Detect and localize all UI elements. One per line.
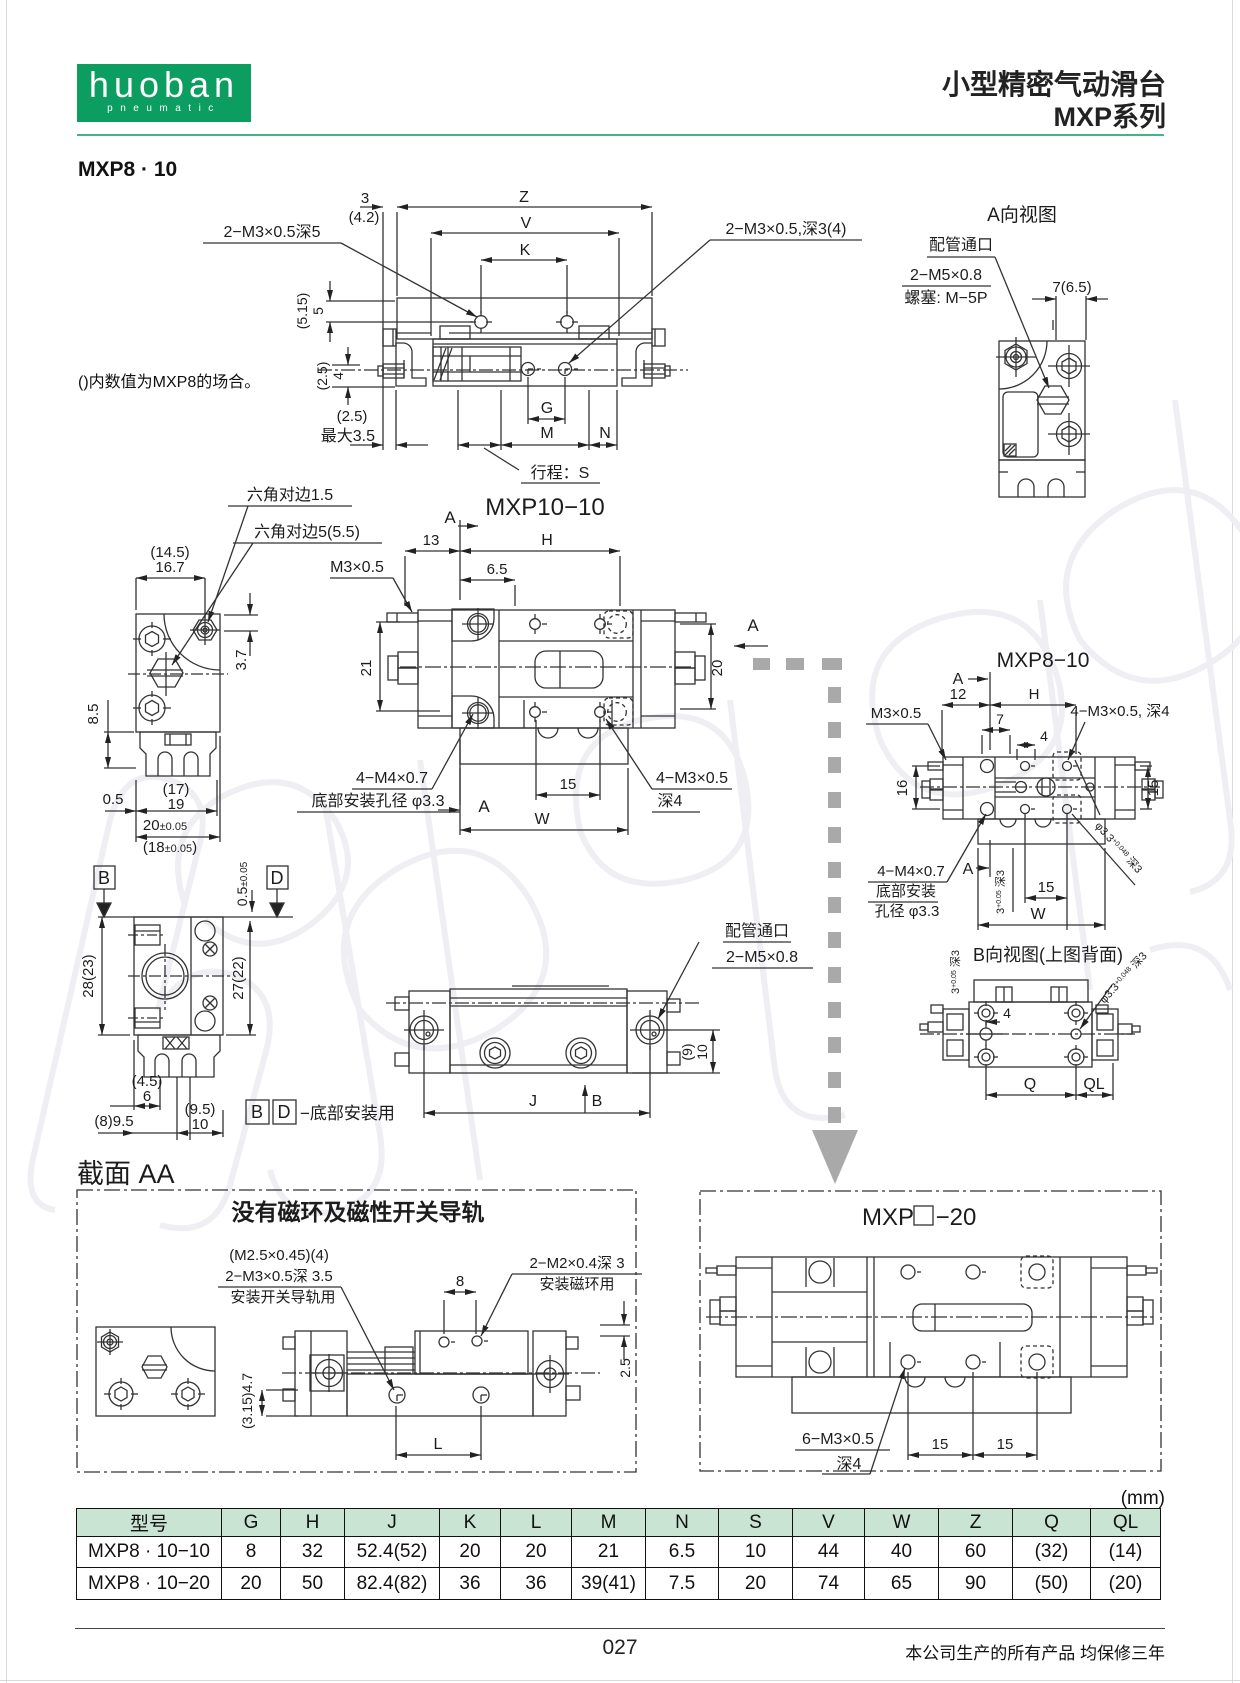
svg-text:27(22): 27(22)	[230, 956, 247, 999]
svg-text:(4.2): (4.2)	[349, 209, 380, 226]
svg-text:15: 15	[1145, 780, 1162, 797]
svg-text:6−M3×0.5: 6−M3×0.5	[802, 1431, 874, 1448]
svg-text:0.5: 0.5	[103, 791, 124, 808]
svg-text:4: 4	[1040, 728, 1048, 744]
svg-text:7(6.5): 7(6.5)	[1052, 279, 1091, 296]
svg-text:没有磁环及磁性开关导轨: 没有磁环及磁性开关导轨	[232, 1199, 485, 1225]
svg-text:N: N	[599, 425, 611, 442]
svg-text:L: L	[434, 1436, 443, 1453]
svg-text:2−M5×0.8: 2−M5×0.8	[726, 949, 798, 966]
svg-text:12: 12	[950, 686, 967, 703]
svg-text:六角对边1.5: 六角对边1.5	[247, 486, 333, 504]
svg-text:A: A	[478, 797, 490, 816]
svg-text:3.7: 3.7	[233, 650, 250, 671]
svg-text:A: A	[747, 616, 759, 635]
svg-text:5: 5	[310, 307, 326, 315]
svg-text:H: H	[1029, 686, 1040, 703]
svg-text:最大3.5: 最大3.5	[321, 427, 375, 445]
svg-text:20±0.05: 20±0.05	[143, 817, 187, 834]
svg-text:2.5: 2.5	[617, 1358, 633, 1378]
svg-text:G: G	[541, 400, 553, 417]
svg-text:Z: Z	[519, 189, 529, 206]
svg-text:QL: QL	[1083, 1076, 1104, 1093]
svg-text:V: V	[521, 215, 532, 232]
svg-text:4−M3×0.5, 深4: 4−M3×0.5, 深4	[1070, 703, 1169, 720]
svg-text:6: 6	[143, 1088, 151, 1105]
svg-text:−底部安装用: −底部安装用	[300, 1104, 395, 1123]
svg-text:M3×0.5: M3×0.5	[330, 559, 384, 576]
svg-text:21: 21	[358, 660, 375, 677]
svg-text:20: 20	[709, 660, 726, 677]
svg-text:2−M3×0.5,深3(4): 2−M3×0.5,深3(4)	[726, 220, 847, 238]
svg-text:M: M	[540, 425, 553, 442]
svg-text:(M2.5×0.45)(4): (M2.5×0.45)(4)	[229, 1247, 329, 1264]
svg-text:7: 7	[996, 711, 1004, 727]
svg-text:配管通口: 配管通口	[929, 236, 993, 254]
svg-text:孔径 φ3.3: 孔径 φ3.3	[875, 903, 940, 920]
svg-text:B: B	[98, 868, 110, 888]
svg-text:D: D	[278, 1102, 291, 1122]
svg-text:深4: 深4	[658, 792, 683, 810]
svg-text:4−M4×0.7: 4−M4×0.7	[877, 863, 945, 880]
svg-text:3: 3	[361, 190, 369, 207]
svg-text:底部安装孔径 φ3.3: 底部安装孔径 φ3.3	[311, 792, 444, 810]
svg-text:6.5: 6.5	[487, 561, 508, 578]
svg-text:K: K	[520, 242, 531, 259]
svg-text:A: A	[444, 508, 456, 527]
svg-text:螺塞: M−5P: 螺塞: M−5P	[904, 289, 987, 307]
svg-text:J: J	[529, 1093, 537, 1110]
svg-text:A: A	[963, 861, 974, 878]
svg-text:15: 15	[997, 1436, 1014, 1453]
svg-text:15: 15	[1038, 879, 1055, 896]
svg-text:3+0.05 深3: 3+0.05 深3	[994, 870, 1007, 914]
svg-text:M3×0.5: M3×0.5	[871, 705, 921, 722]
svg-text:15: 15	[560, 776, 577, 793]
svg-text:4−M3×0.5: 4−M3×0.5	[656, 770, 728, 787]
svg-text:−20: −20	[936, 1204, 977, 1231]
svg-text:4: 4	[1003, 1005, 1011, 1021]
svg-text:4: 4	[330, 372, 346, 380]
svg-text:(8)9.5: (8)9.5	[94, 1113, 133, 1130]
svg-text:D: D	[271, 868, 284, 888]
svg-text:13: 13	[423, 532, 440, 549]
svg-text:16.7: 16.7	[155, 559, 184, 576]
svg-text:六角对边5(5.5): 六角对边5(5.5)	[254, 523, 360, 541]
svg-text:8: 8	[456, 1273, 464, 1290]
svg-text:A向视图: A向视图	[987, 204, 1057, 226]
svg-text:2−M3×0.5深 3.5: 2−M3×0.5深 3.5	[225, 1268, 333, 1285]
svg-text:MXP8−10: MXP8−10	[997, 649, 1090, 672]
svg-text:3+0.05 深3: 3+0.05 深3	[949, 950, 962, 994]
svg-text:B向视图(上图背面): B向视图(上图背面)	[973, 945, 1123, 965]
svg-text:B: B	[251, 1102, 263, 1122]
svg-text:安装开关导轨用: 安装开关导轨用	[230, 1289, 335, 1306]
svg-text:Q: Q	[1024, 1076, 1036, 1093]
svg-text:(18±0.05): (18±0.05)	[143, 839, 197, 856]
svg-text:MXP10−10: MXP10−10	[485, 494, 604, 521]
svg-text:10: 10	[192, 1116, 209, 1133]
svg-text:配管通口: 配管通口	[725, 922, 789, 940]
svg-text:28(23): 28(23)	[80, 954, 97, 997]
svg-text:安装磁环用: 安装磁环用	[539, 1276, 614, 1293]
svg-text:4−M4×0.7: 4−M4×0.7	[356, 770, 428, 787]
svg-text:H: H	[541, 532, 553, 549]
svg-text:(2.5): (2.5)	[314, 362, 330, 391]
svg-text:W: W	[1030, 906, 1046, 923]
svg-text:W: W	[534, 811, 550, 828]
svg-text:16: 16	[894, 780, 911, 797]
svg-text:底部安装: 底部安装	[876, 883, 936, 900]
svg-text:(3.15)4.7: (3.15)4.7	[239, 1373, 255, 1429]
svg-text:行程：S: 行程：S	[531, 464, 590, 482]
svg-text:10: 10	[694, 1044, 710, 1060]
svg-text:8.5: 8.5	[85, 704, 102, 725]
svg-text:深4: 深4	[837, 1455, 862, 1473]
svg-text:(9): (9)	[679, 1043, 695, 1060]
svg-text:(5.15): (5.15)	[294, 293, 310, 330]
svg-text:2−M2×0.4深 3: 2−M2×0.4深 3	[529, 1255, 624, 1272]
svg-text:2−M3×0.5深5: 2−M3×0.5深5	[224, 223, 321, 241]
svg-text:(2.5): (2.5)	[337, 408, 368, 425]
svg-text:0.5±0.05: 0.5±0.05	[234, 861, 250, 906]
svg-text:2−M5×0.8: 2−M5×0.8	[910, 267, 982, 284]
svg-text:MXP: MXP	[862, 1204, 914, 1231]
svg-text:B: B	[592, 1093, 603, 1110]
svg-text:15: 15	[932, 1436, 949, 1453]
svg-text:截面 AA: 截面 AA	[77, 1159, 175, 1189]
